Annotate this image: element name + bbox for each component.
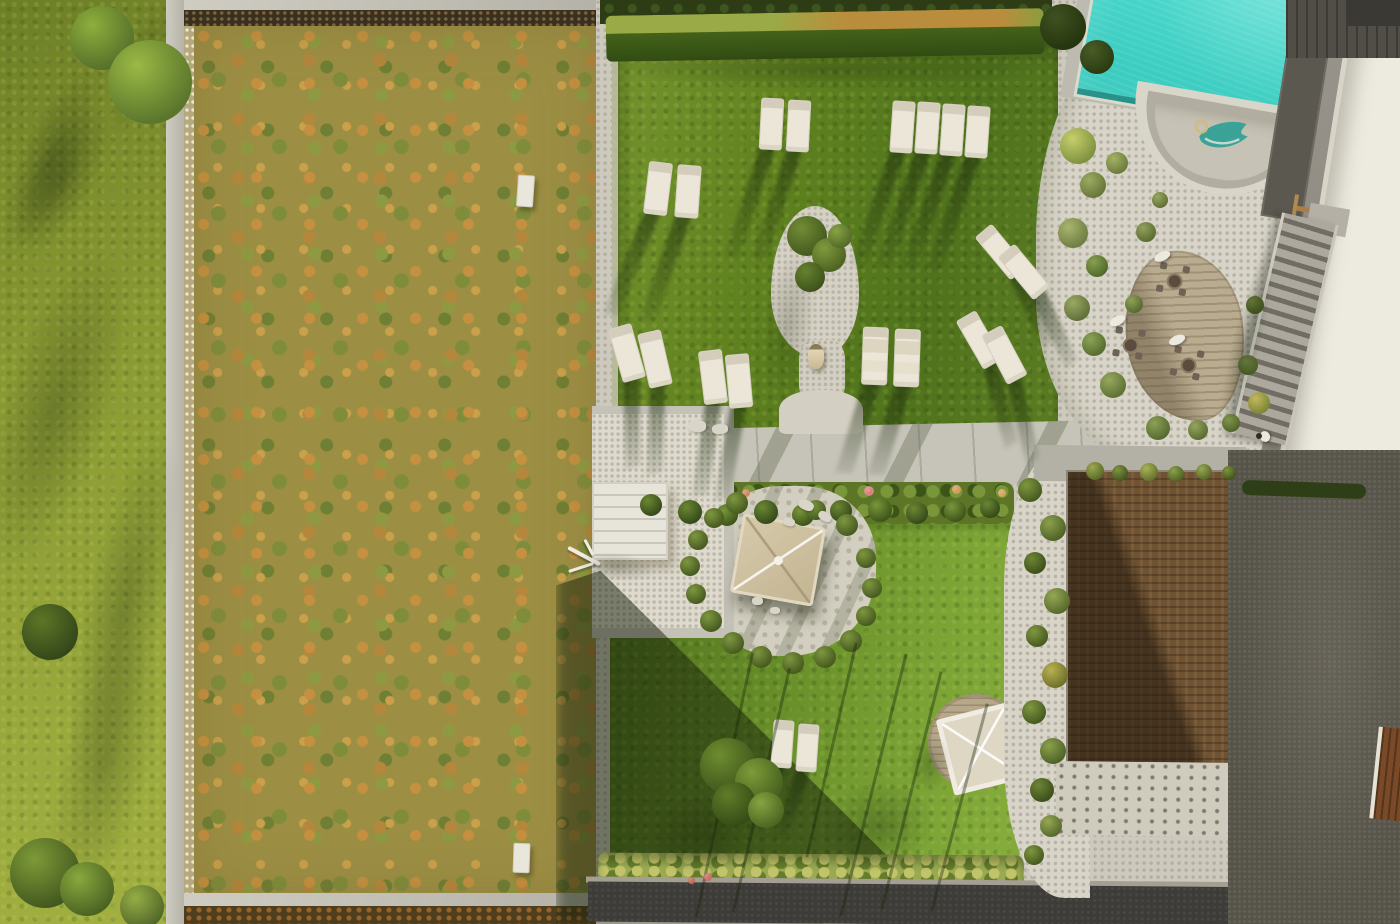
flowers-red [704, 873, 712, 881]
cafe-table-set [1167, 343, 1207, 383]
patio-plant [700, 610, 722, 632]
bed-plant [980, 498, 1000, 518]
sun-lounger [698, 349, 728, 406]
dark-tree [1040, 4, 1086, 50]
sun-lounger [786, 99, 812, 152]
sun-lounger [964, 105, 991, 158]
roof-vent [512, 843, 530, 874]
aerial-garden-photo [0, 0, 1400, 924]
dark-tree [1080, 40, 1114, 74]
bed-shrub [1040, 815, 1062, 837]
flowers-orange [998, 489, 1006, 497]
sun-lounger [643, 161, 673, 217]
bed-shrub [1042, 662, 1068, 688]
sun-lounger [759, 97, 785, 150]
pool-shrub [1086, 255, 1108, 277]
bed-shrub [1040, 515, 1066, 541]
bed-shrub [1024, 845, 1044, 865]
cafe-table-set [1110, 324, 1148, 362]
bed-shrub [1018, 478, 1042, 502]
pool-shrub [1064, 295, 1090, 321]
patio-plant [856, 548, 876, 568]
flowers-pink [864, 486, 874, 496]
pool-shrub [1100, 372, 1126, 398]
bed-shrub [1040, 738, 1066, 764]
sun-lounger-with-towels [861, 327, 889, 386]
pool-shrub [1058, 218, 1088, 248]
patio-plant [840, 630, 862, 652]
sun-lounger [914, 101, 941, 154]
sun-lounger [795, 723, 819, 772]
roofline-bush [1168, 466, 1184, 482]
patio-plant [856, 606, 876, 626]
shrub [120, 885, 164, 924]
sun-lounger [939, 103, 966, 156]
stairs-shadow [1208, 241, 1285, 440]
bed-plant [906, 502, 928, 524]
pool-shrub [1060, 128, 1096, 164]
island-shrub [795, 262, 825, 292]
pool-shrub [1136, 222, 1156, 242]
patio-plant [836, 514, 858, 536]
patio-plant [782, 652, 804, 674]
roofline-bush [1196, 464, 1212, 480]
bed-shrub [1030, 778, 1054, 802]
person-head [1256, 433, 1262, 439]
daybed-shadow [901, 730, 957, 797]
patio-plant [704, 508, 724, 528]
hedge-shadow [608, 50, 1044, 90]
sun-lounger [674, 164, 702, 219]
bed-shrub [1024, 552, 1046, 574]
stepping-stone [770, 607, 780, 614]
bed-shrub [1026, 625, 1048, 647]
pool-shrub [1188, 420, 1208, 440]
patio-plant [688, 530, 708, 550]
stepping-stone [752, 597, 763, 605]
person-walking [1254, 428, 1274, 444]
patio-plant [686, 584, 706, 604]
patio-plant [722, 632, 744, 654]
patio-plant [726, 492, 748, 514]
pool-shrub [1082, 332, 1106, 356]
shrub [60, 862, 114, 916]
roofline-bush [1112, 465, 1128, 481]
patio-plant [862, 578, 882, 598]
flowers-red [688, 877, 695, 884]
sprite-layer [0, 0, 1400, 924]
pool-shrub [1248, 392, 1270, 414]
stepping-stone [688, 420, 706, 433]
skylight-shadow [575, 548, 658, 586]
bed-plant [944, 500, 966, 522]
island-shrub [828, 224, 852, 248]
pool-shrub [1125, 295, 1143, 313]
sun-lounger [637, 329, 673, 389]
dark-hedge [1242, 480, 1366, 499]
roof-vent [516, 174, 535, 207]
pool-shrub [1152, 192, 1168, 208]
bed-plant [640, 494, 662, 516]
shrub [22, 604, 78, 660]
bed-shrub [1022, 700, 1046, 724]
roofline-bush [1140, 463, 1158, 481]
pool-shrub [1106, 152, 1128, 174]
sun-lounger [889, 100, 916, 153]
bed-plant [678, 500, 702, 524]
cafe-table-set [1153, 259, 1192, 298]
patio-plant [680, 556, 700, 576]
garden-tree [748, 792, 784, 828]
pool-shrub [1146, 416, 1170, 440]
sun-lounger-with-towels [893, 329, 921, 388]
flowers-orange [952, 485, 961, 494]
patio-plant [750, 646, 772, 668]
bed-plant [754, 500, 778, 524]
roofline-bush [1086, 462, 1104, 480]
bed-shrub [1044, 588, 1070, 614]
pool-shrub [1080, 172, 1106, 198]
palm-bush [108, 40, 192, 124]
patio-plant [814, 646, 836, 668]
sun-lounger [725, 353, 754, 409]
bed-plant [868, 498, 892, 522]
roofline-bush [1222, 466, 1236, 480]
